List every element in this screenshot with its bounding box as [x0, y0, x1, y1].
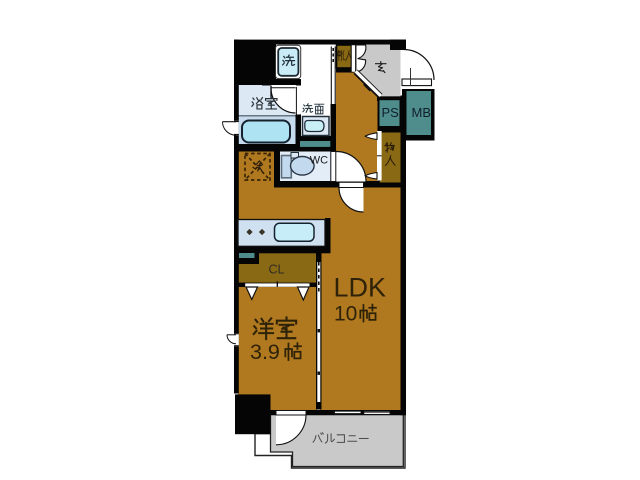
svg-text:PS: PS	[382, 105, 400, 120]
svg-text:WC: WC	[310, 155, 328, 167]
svg-text:10: 10	[334, 303, 357, 326]
svg-text:CL: CL	[269, 263, 285, 277]
svg-text:MB: MB	[412, 105, 432, 120]
svg-text:LDK: LDK	[334, 273, 387, 303]
svg-text:3.9: 3.9	[250, 340, 280, 364]
